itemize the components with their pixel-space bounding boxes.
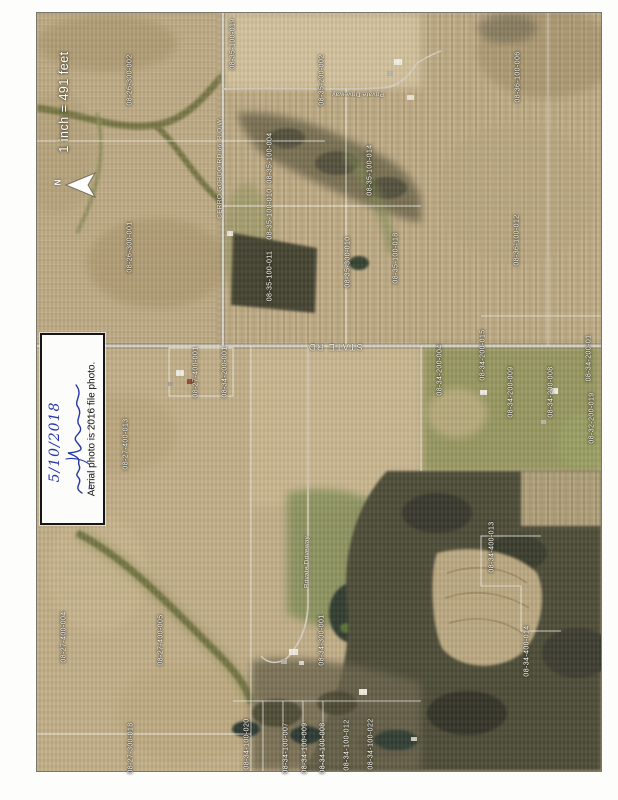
parcel-label: 08-35-100-019 xyxy=(230,18,237,69)
parcel-label: 08-34-200-001 xyxy=(222,346,229,397)
parcel-label: 08-35-100-004 xyxy=(267,132,274,183)
signature-scribble xyxy=(60,343,90,519)
parcel-label: 08-35-300-010 xyxy=(345,236,352,287)
parcel-label: 08-35-200-002 xyxy=(319,54,326,105)
parcel-label: 08-36-100-006 xyxy=(515,51,522,102)
north-arrow: N xyxy=(52,162,102,208)
scale-text: 1 inch = 491 feet xyxy=(57,51,71,152)
road-label: Private Driveway xyxy=(304,536,311,588)
parcel-label: 08-27-400-004 xyxy=(61,611,68,662)
parcel-label: 08-26-300-002 xyxy=(127,54,134,105)
photo-note-box: Aerial photo is 2016 file photo. 5/10/20… xyxy=(40,333,105,525)
parcel-label: 08-34-100-009 xyxy=(302,722,309,773)
parcel-label: 08-34-100-020 xyxy=(244,718,251,769)
north-letter: N xyxy=(53,180,62,186)
parcel-label: 08-34-200-015 xyxy=(480,329,487,380)
parcel-label: 08-35-100-018 xyxy=(393,232,400,283)
parcel-label: 08-27-400-001 xyxy=(193,346,200,397)
parcel-label: 08-27-400-013 xyxy=(123,418,130,469)
note-handwritten-date: 5/10/2018 xyxy=(47,402,63,483)
road-label: Private Driveway xyxy=(332,91,384,98)
parcel-label: 08-34-100-012 xyxy=(344,719,351,770)
road-label: STATE RD xyxy=(307,342,362,352)
parcel-label: 08-34-100-007 xyxy=(283,722,290,773)
parcel-label: 08-34-200-008 xyxy=(548,366,555,417)
scanned-page: 08-26-300-00208-26-300-00108-35-100-0190… xyxy=(0,0,618,800)
parcel-label: 08-27-300-018 xyxy=(128,722,135,773)
parcel-label: 08-35-100-011 xyxy=(267,251,274,302)
parcel-label: 08-36-100-012 xyxy=(514,214,521,265)
parcel-label: 08-34-400-013 xyxy=(489,521,496,572)
parcel-label: 08-35-100-014 xyxy=(367,144,374,195)
parcel-label: 08-34-200-009 xyxy=(508,366,515,417)
parcel-label: 08-26-300-001 xyxy=(127,221,134,272)
parcel-label: 08-32-200-019 xyxy=(589,392,596,443)
parcel-label: 08-27-400-005 xyxy=(158,614,165,665)
parcel-label: 08-34-400-014 xyxy=(524,625,531,676)
road-label: CERRO GORDO RD 66' R.O.W. xyxy=(217,117,224,219)
parcel-label: 08-34-100-008 xyxy=(320,722,327,773)
parcel-label: 08-34-100-022 xyxy=(368,718,375,769)
parcel-label: 08-34-300-001 xyxy=(319,614,326,665)
parcel-label: 08-34-200-01 xyxy=(586,335,593,382)
parcel-label: 08-35-100-010 xyxy=(267,188,274,239)
parcel-label: 08-34-200-004 xyxy=(437,344,444,395)
